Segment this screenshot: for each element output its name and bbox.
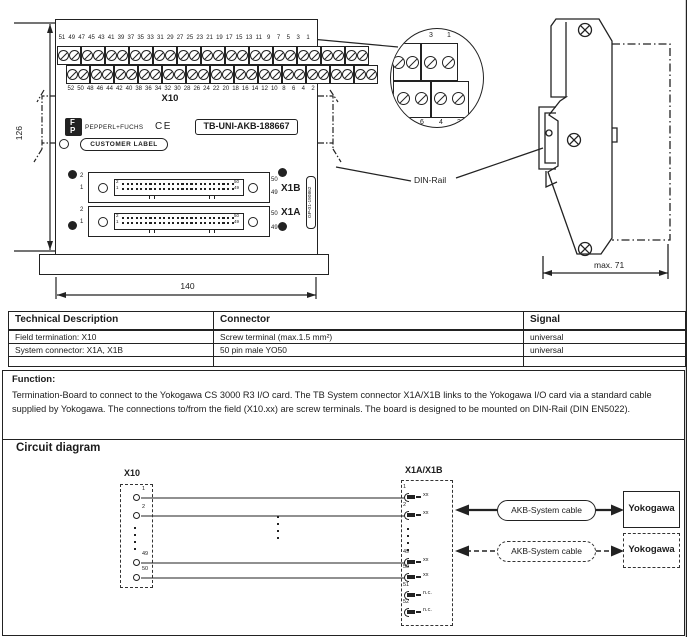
x1ab-pin-number: 51 [403,583,409,589]
connector-pin [177,188,179,190]
screw-terminal-icon [250,50,261,61]
terminal-block [225,46,249,65]
connector-pin [200,183,202,185]
connector-pin [218,222,220,224]
x1ab-pin-tick [416,514,421,515]
connector-pin [177,183,179,185]
connector-pin [222,188,224,190]
terminal-number: 49 [67,35,77,41]
module-phantom-outline [612,44,670,240]
screw-terminal-icon [442,56,455,69]
connector-pin [122,183,124,185]
connector-pin [204,222,206,224]
x10-pin-number: 49 [142,552,148,558]
connector-pin [181,183,183,185]
table-cell [9,357,214,366]
x1ab-pin-contact-icon [407,593,415,597]
x1ab-pin-contact-icon [407,575,415,579]
terminal-number: 4 [299,86,309,92]
terminal-number: 14 [250,86,260,92]
connector-pin [168,183,170,185]
screw-terminal-icon [226,50,237,61]
table-cell: Screw terminal (max.1.5 mm²) [214,331,524,344]
x1ab-pin-number: 2 [403,503,406,509]
terminal-block [186,65,210,84]
table-header: Signal [524,312,685,331]
connector-x1a-label: X1A [281,208,300,218]
screw-terminal-icon [211,69,222,80]
screw-terminal-icon [213,50,224,61]
screw-terminal-icon [102,69,113,80]
cable-label-solid: AKB-System cable [497,500,596,521]
mounting-screw-icon [278,168,287,177]
connector-pin [168,222,170,224]
pin-number: 50 [234,180,239,185]
terminal-block [57,46,81,65]
led-hole [59,139,69,149]
screw-terminal-icon [174,69,185,80]
yokogawa-box-solid: Yokogawa [623,491,680,528]
pin-number: 2 [116,180,119,185]
connector-pin [190,183,192,185]
terminal-number: 24 [202,86,212,92]
connector-pin [159,222,161,224]
ellipsis-dots [277,516,279,543]
connector-pin [213,183,215,185]
terminal-number: 35 [136,35,146,41]
circuit-x1ab-label: X1A/X1B [405,466,443,475]
terminal-number: 1 [303,35,313,41]
terminal-block [210,65,234,84]
connector-pin [136,188,138,190]
connector-screw-icon [98,183,108,193]
connector-pin [163,222,165,224]
terminal-number: 8 [279,86,289,92]
x1ab-pin-number: 52 [403,600,409,606]
connector-pin [127,183,129,185]
pin-number: 1 [80,219,83,225]
terminal-number: 1 [444,32,454,39]
connector-pin [149,217,151,219]
connector-pin [195,188,197,190]
connector-pin [181,222,183,224]
terminal-block [330,65,354,84]
connector-pin [227,222,229,224]
terminal-number: 6 [417,119,427,126]
keying-notch [209,229,215,233]
pin-number: 1 [116,186,119,191]
pin-number: 50 [234,214,239,219]
connector-x1b-label: X1B [281,184,300,194]
dim-label-width: 140 [160,281,215,291]
connector-pin [200,217,202,219]
connector-pin [154,222,156,224]
datasheet-page: 5149474543413937353331292725232119171513… [0,0,688,637]
terminal-number: 37 [126,35,136,41]
screw-terminal-icon [91,69,102,80]
table-cell [214,357,524,366]
screw-terminal-icon [366,69,377,80]
screw-terminal-icon [78,69,89,80]
screw-terminal-icon [117,50,128,61]
screw-terminal-icon [130,50,141,61]
connector-pin [190,222,192,224]
screw-terminal-icon [141,50,152,61]
terminal-number: 47 [77,35,87,41]
screw-cross-icon [568,24,592,256]
screw-terminal-icon [222,69,233,80]
screw-terminal-icon [67,69,78,80]
connector-pin [122,188,124,190]
terminal-number: 30 [173,86,183,92]
circuit-x10-label: X10 [124,469,140,478]
screw-terminal-icon [342,69,353,80]
terminal-number: 17 [224,35,234,41]
connector-pin [177,217,179,219]
connector-pin [186,188,188,190]
connector-pin [140,217,142,219]
connector-pin [213,222,215,224]
connector-pin [140,188,142,190]
terminal-block [105,46,129,65]
connector-pin [222,217,224,219]
terminal-number: 2 [454,119,464,126]
screw-terminal-icon [318,69,329,80]
screw-terminal-icon [198,69,209,80]
terminal-block [81,46,105,65]
terminal-block [129,46,153,65]
terminal-block [153,46,177,65]
terminal-number: 6 [289,86,299,92]
connector-pin [149,183,151,185]
connector-pin [140,183,142,185]
connector-pin [218,188,220,190]
keying-notch [149,195,155,199]
connector-pin [172,183,174,185]
terminal-number: 51 [57,35,67,41]
connector-pin [186,183,188,185]
terminal-number: 31 [155,35,165,41]
terminal-number: 34 [153,86,163,92]
connector-pin [163,217,165,219]
board-code-text: GP-01-190862 [307,177,315,228]
circuit-section-frame [2,440,685,636]
x10-pin-number: 50 [142,567,148,573]
connector-pin [227,183,229,185]
terminal-number: 11 [254,35,264,41]
connector-pin [172,217,174,219]
terminal-number: 41 [106,35,116,41]
screw-terminal-icon [165,50,176,61]
yokogawa-box-dashed: Yokogawa [623,533,680,568]
screw-terminal-icon [163,69,174,80]
x10-bottom-numbers: 5250484644424038363432302826242220181614… [66,86,318,92]
screw-terminal-icon [178,50,189,61]
screw-terminal-icon [115,69,126,80]
x10-pin-circle-icon [133,574,140,581]
side-view [539,19,670,279]
terminal-number: 25 [185,35,195,41]
connector-pin [159,217,161,219]
x1ab-pin-signal: xx [423,511,429,517]
terminal-block [321,46,345,65]
terminal-block [258,65,282,84]
terminal-number: 19 [215,35,225,41]
connector-pin [200,188,202,190]
keying-notch [149,229,155,233]
screw-terminal-icon [274,50,285,61]
terminal-block [234,65,258,84]
terminal-number: 33 [146,35,156,41]
x1ab-pin-contact-icon [407,610,415,614]
terminal-block [162,65,186,84]
terminal-number: 21 [205,35,215,41]
x10-pin-circle-icon [133,494,140,501]
connector-pin [190,188,192,190]
pin-number: 49 [234,220,239,225]
terminal-number: 38 [134,86,144,92]
terminal-number: 50 [76,86,86,92]
connector-pin [159,188,161,190]
connector-pin [131,188,133,190]
terminal-number: 46 [95,86,105,92]
din-rail-leader-left [336,167,411,181]
x1ab-pin-contact-icon [407,495,415,499]
cable-label-dashed: AKB-System cable [497,541,596,562]
pepperl-fuchs-logo-icon: F P [65,118,82,136]
terminal-number: 39 [116,35,126,41]
screw-terminal-icon [139,69,150,80]
terminal-number: 23 [195,35,205,41]
terminal-detail-view: 3 1 6 4 2 [390,28,484,128]
pin-number: 49 [234,186,239,191]
terminal-number: 10 [269,86,279,92]
connector-pin [209,217,211,219]
terminal-number: 7 [274,35,284,41]
table-header: Technical Description [9,312,214,331]
connector-pin [195,217,197,219]
screw-terminal-icon [434,92,447,105]
terminal-block [66,65,90,84]
screw-terminal-icon [309,50,320,61]
terminal-block [177,46,201,65]
screw-terminal-icon [270,69,281,80]
connector-pin [136,217,138,219]
ce-mark: CE [155,121,172,132]
x10-top-blocks [57,46,313,65]
x10-pin-circle-icon [133,512,140,519]
connector-pin [163,188,165,190]
mounting-screw-icon [68,221,77,230]
screw-terminal-icon [346,50,357,61]
screw-terminal-icon [298,50,309,61]
din-rail-label: DIN-Rail [414,175,446,185]
connector-pin [140,222,142,224]
table-cell: universal [524,331,685,344]
screw-terminal-icon [259,69,270,80]
connector-pin [127,217,129,219]
connector-screw-icon [248,183,258,193]
terminal-block [345,46,369,65]
terminal-number: 12 [260,86,270,92]
x1ab-pin-number: 50 [403,565,409,571]
terminal-number: 16 [240,86,250,92]
connector-pin [222,222,224,224]
screw-terminal-icon [246,69,257,80]
terminal-number: 48 [85,86,95,92]
connector-pin [172,222,174,224]
terminal-number: 3 [426,32,436,39]
connector-pin [209,188,211,190]
connector-pin [186,217,188,219]
connector-pin [131,183,133,185]
x1ab-pin: 2xx [402,509,436,521]
connector-pin [149,222,151,224]
terminal-block [354,65,378,84]
x10-pin: 2 [133,509,149,523]
terminal-number: 45 [87,35,97,41]
screw-terminal-icon [355,69,366,80]
screw-terminal-icon [333,50,344,61]
terminal-number: 15 [234,35,244,41]
connector-pin [195,183,197,185]
screw-terminal-icon [307,69,318,80]
terminal-block [273,46,297,65]
connector-pin [227,188,229,190]
connector-pin [145,183,147,185]
screw-terminal-icon [294,69,305,80]
connector-pin [149,188,151,190]
connector-pin [122,222,124,224]
ellipsis-dots [134,527,136,551]
connector-pin [131,217,133,219]
screw-terminal-icon [406,56,419,69]
terminal-number: 5 [283,35,293,41]
function-title: Function: [12,374,675,385]
pin-number: 1 [80,185,83,191]
screw-terminal-icon [189,50,200,61]
connector-pin [218,183,220,185]
table-cell: 50 pin male YO50 [214,344,524,357]
screw-terminal-icon [424,56,437,69]
x10-pin-number: 2 [142,505,145,511]
terminal-number: 4 [436,119,446,126]
connector-screw-icon [248,217,258,227]
function-text: Termination-Board to connect to the Yoko… [12,389,675,417]
connector-pin [177,222,179,224]
connector-pin [204,217,206,219]
terminal-number: 9 [264,35,274,41]
pin-row [122,183,234,185]
x1ab-pin-number: 49 [403,550,409,556]
terminal-number: 44 [105,86,115,92]
screw-terminal-icon [187,69,198,80]
connector-pin [195,222,197,224]
pin-number: 2 [116,214,119,219]
screw-terminal-icon [202,50,213,61]
terminal-block [297,46,321,65]
terminal-number: 2 [308,86,318,92]
screw-terminal-icon [261,50,272,61]
connector-pin [131,222,133,224]
terminal-number: 32 [163,86,173,92]
x1ab-pin-tick [416,611,421,612]
table-cell: Field termination: X10 [9,331,214,344]
connector-pin [136,183,138,185]
x1ab-pin: 52n.c. [402,606,436,618]
connector-pin [204,183,206,185]
connector-pin [136,222,138,224]
brand-text: PEPPERL+FUCHS [85,124,143,131]
screw-terminal-icon [285,50,296,61]
logo-letter: P [70,127,75,135]
screw-terminal-icon [58,50,69,61]
connector-screw-icon [98,217,108,227]
screw-terminal-icon [415,92,428,105]
connector-pin [145,188,147,190]
pin-row [122,188,234,190]
screw-terminal-icon [452,92,465,105]
connector-pin [145,222,147,224]
dim-label-height: 126 [14,126,24,140]
x1ab-pin-signal: xx [423,493,429,499]
connector-x1a: 2 1 50 49 [88,206,270,237]
x1ab-pin-signal: xx [423,558,429,564]
customer-label: CUSTOMER LABEL [80,138,168,151]
pin-row [122,217,234,219]
x1ab-pin-tick [416,594,421,595]
terminal-number: 28 [182,86,192,92]
terminal-number: 36 [144,86,154,92]
connector-pin [181,188,183,190]
screw-terminal-icon [154,50,165,61]
screw-terminal-icon [93,50,104,61]
table-cell: universal [524,344,685,357]
screw-terminal-icon [397,92,410,105]
connector-pin [122,217,124,219]
terminal-block [306,65,330,84]
connector-pin [213,188,215,190]
connector-pin [163,183,165,185]
mounting-screw-icon [68,170,77,179]
function-section: Function: Termination-Board to connect t… [2,370,685,440]
terminal-number: 43 [96,35,106,41]
terminal-number: 26 [192,86,202,92]
x10-pin: 1 [133,491,149,505]
connector-pin [222,183,224,185]
connector-pin [209,222,211,224]
connector-pin [218,217,220,219]
x10-pin: 50 [133,571,149,585]
pin-number: 50 [271,211,278,217]
x1ab-pin-number: 1 [403,485,406,491]
terminal-number: 22 [211,86,221,92]
connector-pin [159,183,161,185]
screw-terminal-icon [331,69,342,80]
screw-terminal-icon [69,50,80,61]
terminal-block [201,46,225,65]
pin-number: 50 [271,177,278,183]
x1ab-pin-tick [416,561,421,562]
terminal-number: 29 [165,35,175,41]
connector-pin [209,183,211,185]
terminal-block [90,65,114,84]
board-code-label: GP-01-190862 [306,176,316,229]
x1ab-pin-signal: n.c. [423,591,432,597]
terminal-block [138,65,162,84]
mounting-screw-icon [278,222,287,231]
terminal-number: 40 [124,86,134,92]
